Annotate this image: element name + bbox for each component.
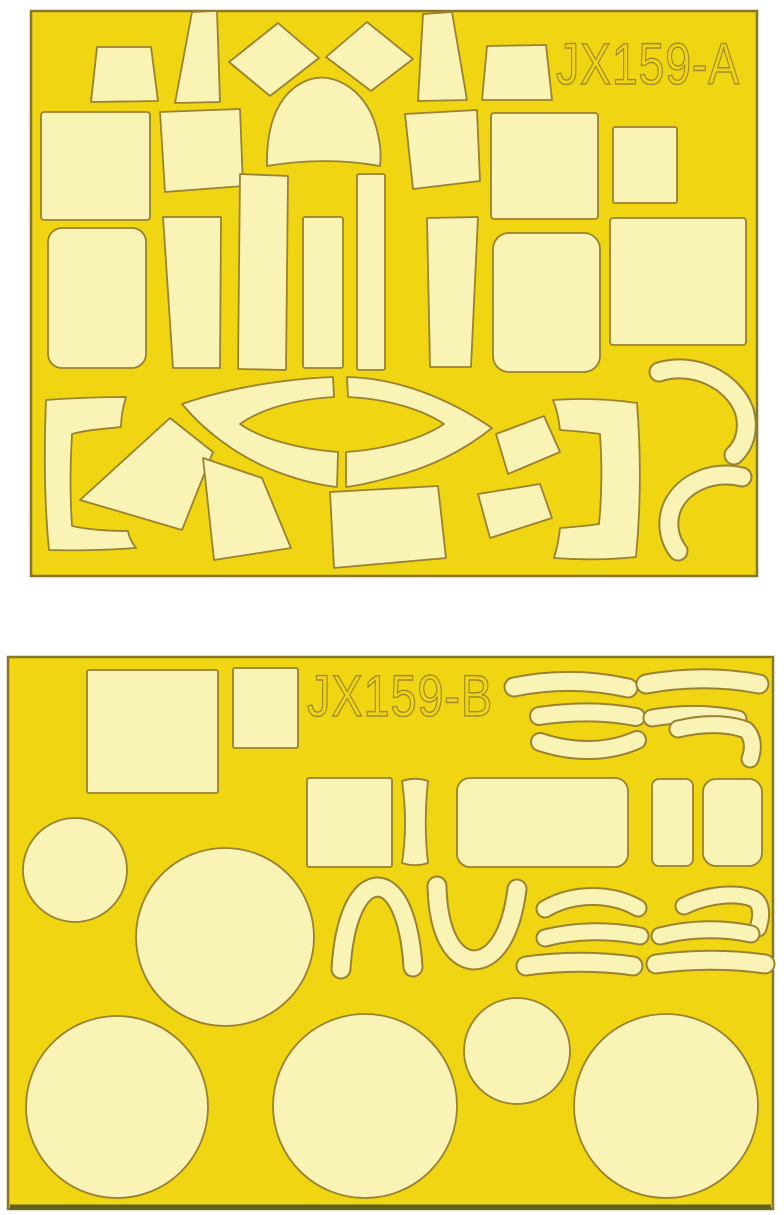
mask-piece-b-rounded-square: [703, 779, 762, 866]
mask-piece-a-square-large-left: [41, 112, 150, 220]
mask-piece-a-rounded-rect-left: [48, 228, 146, 368]
mask-piece-b-square-mid: [307, 778, 392, 867]
mask-piece-b-circle-large-upper: [136, 848, 314, 1026]
mask-piece-b-strip-1: [514, 681, 628, 688]
mask-piece-b-square-small: [233, 668, 298, 748]
mask-piece-a-trapezoid-right: [482, 45, 552, 100]
mask-piece-a-square-small-right: [613, 127, 677, 203]
mask-piece-a-square-large-right: [491, 113, 598, 219]
mask-piece-b-strip-9: [526, 962, 633, 966]
mask-piece-b-strip-4: [646, 679, 759, 684]
mask-piece-b-canopy-rounded-rect: [457, 778, 628, 867]
mask-piece-b-strip-7: [545, 932, 640, 938]
sheet-jx159-b: JX159-B: [8, 657, 773, 1209]
mask-piece-a-frame-strip-4: [357, 174, 385, 370]
mask-piece-a-rounded-rect-right: [493, 233, 600, 372]
mask-piece-a-quad-mid-left: [160, 109, 243, 192]
sheet-b-label: JX159-B: [307, 664, 493, 729]
mask-piece-a-frame-strip-3: [303, 217, 343, 368]
mask-sheet-scan: JX159-A: [0, 0, 784, 1215]
mask-piece-a-trapezoid-left: [91, 47, 158, 102]
mask-piece-b-circle-large-1: [26, 1016, 208, 1198]
mask-sheets-figure: JX159-A: [0, 0, 784, 1215]
sheet-a-label: JX159-A: [556, 32, 740, 97]
mask-piece-b-square-large: [87, 670, 218, 793]
mask-piece-b-waisted-strip: [402, 779, 428, 866]
mask-piece-b-circle-large-3: [574, 1014, 758, 1198]
mask-piece-a-frame-strip-2: [238, 174, 288, 370]
mask-piece-b-circle-large-2: [273, 1014, 457, 1198]
mask-piece-a-frame-strip-1: [163, 217, 221, 368]
mask-piece-a-fan-segment-3: [330, 486, 446, 568]
mask-piece-a-quad-mid-right: [405, 110, 480, 189]
mask-piece-b-strip-8: [660, 930, 751, 936]
mask-piece-a-square-xlarge-right: [610, 218, 746, 345]
mask-piece-b-strip-2: [539, 712, 636, 717]
mask-piece-b-circle-small-right: [464, 998, 570, 1104]
mask-piece-b-circle-small-left: [23, 818, 127, 922]
sheet-jx159-a: JX159-A: [31, 11, 757, 576]
mask-piece-b-strip-10: [656, 960, 765, 964]
mask-piece-b-vertical-strip: [652, 779, 693, 866]
mask-piece-a-frame-strip-5: [427, 217, 478, 367]
